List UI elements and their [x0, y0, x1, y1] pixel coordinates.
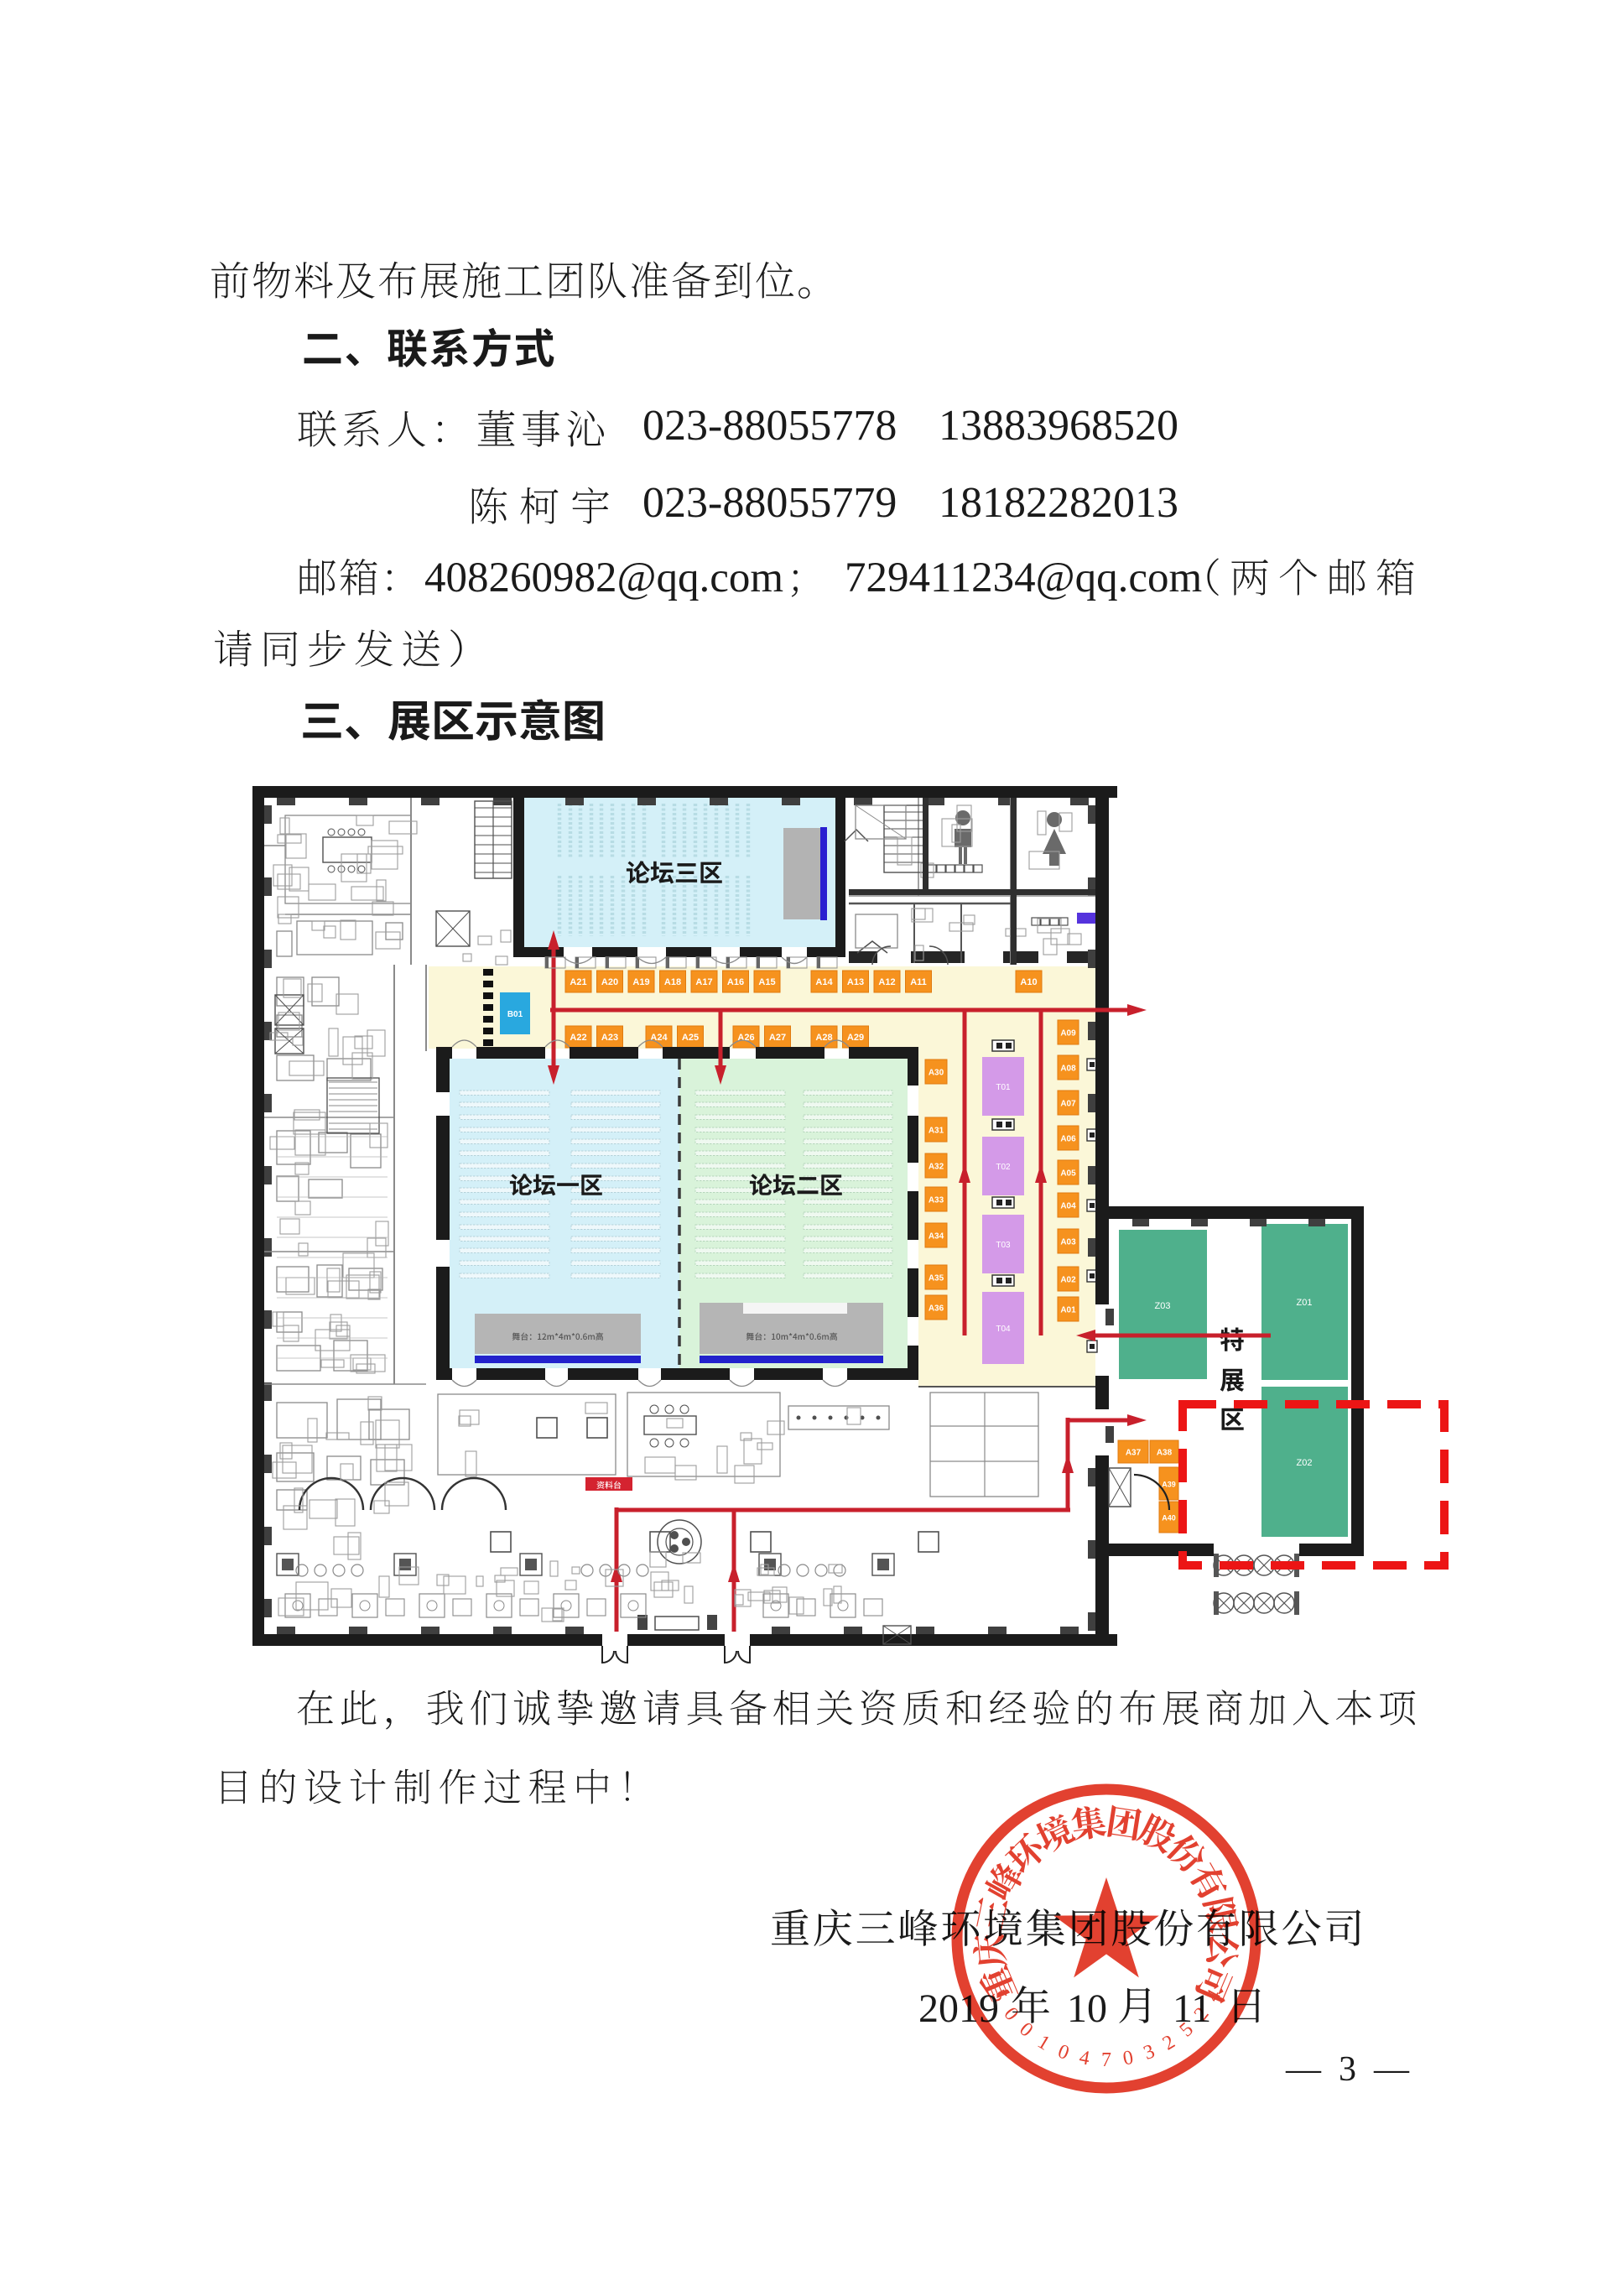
svg-text:T01: T01: [996, 1083, 1011, 1092]
svg-text:A38: A38: [1157, 1449, 1173, 1458]
svg-text:023-88055778: 023-88055778: [642, 402, 897, 450]
svg-text:A13: A13: [847, 977, 864, 987]
svg-text:T04: T04: [996, 1325, 1011, 1334]
svg-text:A31: A31: [929, 1127, 944, 1136]
svg-text:A12: A12: [878, 977, 895, 987]
svg-text:A01: A01: [1060, 1306, 1076, 1315]
svg-text:A35: A35: [929, 1274, 944, 1283]
svg-text:A19: A19: [632, 977, 649, 987]
svg-text:A23: A23: [601, 1033, 618, 1043]
svg-text:B01: B01: [507, 1010, 523, 1019]
svg-text:A14: A14: [815, 977, 833, 987]
svg-text:0: 0: [1015, 2018, 1037, 2041]
svg-text:1: 1: [1033, 2031, 1053, 2054]
svg-text:A39: A39: [1162, 1481, 1176, 1489]
svg-text:A05: A05: [1060, 1169, 1076, 1179]
svg-text:A03: A03: [1060, 1238, 1076, 1247]
svg-text:10: 10: [1067, 1986, 1107, 2031]
svg-text:A02: A02: [1060, 1276, 1076, 1285]
svg-text:408260982@qq.com: 408260982@qq.com: [424, 554, 783, 601]
svg-text:A17: A17: [695, 977, 712, 987]
svg-text:0: 0: [1121, 2047, 1135, 2070]
svg-text:7: 7: [1101, 2049, 1111, 2071]
svg-text:A33: A33: [929, 1196, 944, 1205]
svg-text:3: 3: [1141, 2040, 1157, 2064]
svg-text:A32: A32: [929, 1163, 944, 1172]
svg-text:A09: A09: [1060, 1029, 1076, 1039]
svg-text:A25: A25: [682, 1033, 699, 1043]
svg-text:— 3 —: — 3 —: [1285, 2050, 1410, 2089]
svg-text:A20: A20: [601, 977, 618, 987]
svg-text:A22: A22: [570, 1033, 586, 1043]
svg-text:A36: A36: [929, 1304, 944, 1314]
svg-text:A08: A08: [1060, 1065, 1076, 1074]
svg-text:A27: A27: [769, 1033, 786, 1043]
svg-text:A10: A10: [1020, 977, 1037, 987]
svg-text:A21: A21: [570, 977, 586, 987]
svg-text:A06: A06: [1060, 1135, 1076, 1144]
svg-text:A37: A37: [1126, 1449, 1142, 1458]
svg-text:A30: A30: [929, 1069, 944, 1078]
svg-text:A15: A15: [758, 977, 775, 987]
svg-text:13883968520: 13883968520: [939, 402, 1178, 450]
svg-text:A40: A40: [1162, 1514, 1176, 1523]
svg-text:18182282013: 18182282013: [939, 479, 1178, 527]
svg-text:A34: A34: [929, 1232, 944, 1242]
svg-text:4: 4: [1078, 2047, 1091, 2070]
svg-text:A24: A24: [650, 1033, 668, 1043]
svg-text:0: 0: [1055, 2040, 1072, 2064]
svg-text:T02: T02: [996, 1163, 1011, 1172]
svg-text:A28: A28: [815, 1033, 832, 1043]
svg-text:Z03: Z03: [1155, 1301, 1171, 1311]
svg-text:0: 0: [999, 2003, 1022, 2025]
svg-text:T03: T03: [996, 1241, 1011, 1250]
svg-text:A16: A16: [727, 977, 744, 987]
svg-text:A18: A18: [664, 977, 681, 987]
svg-text:Z01: Z01: [1297, 1298, 1313, 1308]
svg-text:A04: A04: [1060, 1202, 1076, 1211]
svg-text:A07: A07: [1060, 1100, 1076, 1109]
svg-text:A29: A29: [847, 1033, 864, 1043]
svg-text:Z02: Z02: [1297, 1458, 1313, 1468]
svg-text:729411234@qq.com: 729411234@qq.com: [845, 554, 1202, 601]
svg-text:A11: A11: [910, 977, 927, 987]
svg-text:023-88055779: 023-88055779: [642, 479, 897, 527]
svg-text:2: 2: [1159, 2031, 1179, 2054]
